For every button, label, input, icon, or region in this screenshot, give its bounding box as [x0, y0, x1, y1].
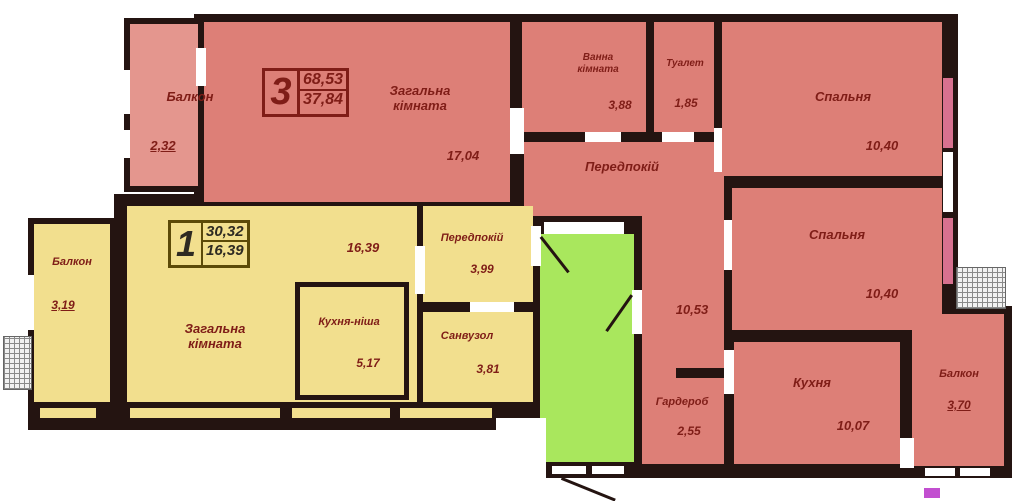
- label-living3: Загальна кімната: [368, 84, 472, 114]
- door-san1: [470, 302, 514, 312]
- area-bedroom1: 10,40: [852, 138, 912, 153]
- label-hallway3: Передпокій: [566, 160, 678, 175]
- label-bedroom2: Спальня: [782, 228, 892, 243]
- window-balcony-left: [28, 275, 34, 330]
- door-kitchen3-balcony: [900, 438, 914, 468]
- room-balcony-left: [34, 224, 110, 402]
- label-balcony-left: Балкон: [38, 256, 106, 269]
- apt3-number: 3: [265, 71, 299, 114]
- label-toilet: Туалет: [656, 58, 714, 70]
- door-bath: [585, 132, 621, 142]
- label-balcony-top: Балкон: [140, 90, 240, 105]
- apt3-stamp: 3 68,53 37,84: [262, 68, 349, 117]
- erased-corner: [496, 418, 546, 488]
- floor-plan: 3 68,53 37,84 1 30,32 16,39 Балкон 2,32 …: [0, 0, 1020, 501]
- label-living1: Загальна кімната: [163, 322, 267, 352]
- area-toilet: 1,85: [662, 96, 710, 110]
- door-toilet: [662, 132, 694, 142]
- apt1-number: 1: [171, 223, 203, 265]
- room-kitchen-niche: [295, 282, 409, 400]
- area-wardrobe: 2,55: [664, 424, 714, 438]
- apt1-stamp: 1 30,32 16,39: [168, 220, 250, 268]
- room-balcony-top: [130, 24, 198, 186]
- label-balcony-right: Балкон: [924, 368, 994, 381]
- window-balcony-right-2: [960, 468, 990, 476]
- label-hallway1: Передпокій: [426, 232, 518, 245]
- room-balcony-right: [912, 314, 1004, 466]
- apt3-area-living: 37,84: [300, 91, 346, 109]
- area-living1: 16,39: [328, 240, 398, 255]
- area-bath: 3,88: [596, 98, 644, 112]
- window-magenta: [924, 488, 940, 498]
- area-balcony-top: 2,32: [135, 138, 191, 153]
- door-bedroom2: [724, 220, 732, 270]
- window-balcony-top-1: [124, 70, 130, 114]
- door-kitchen3: [724, 350, 734, 394]
- area-bedroom2: 10,40: [852, 286, 912, 301]
- room-hallway3-top: [524, 142, 724, 216]
- area-living3: 17,04: [428, 148, 498, 163]
- window-apt1-bottom-1: [130, 408, 280, 418]
- apt1-area-living: 16,39: [203, 242, 247, 259]
- window-bedroom2-pink: [943, 218, 953, 284]
- window-apt1-bottom-3: [400, 408, 492, 418]
- room-kitchen3: [734, 342, 900, 464]
- door-bedroom1: [714, 128, 722, 172]
- room-stairwell: [540, 234, 634, 462]
- window-balcony-left-bottom: [40, 408, 96, 418]
- door-living3-hall: [510, 108, 524, 154]
- window-bedroom-gap: [943, 152, 953, 212]
- apt3-area-total: 68,53: [300, 71, 346, 91]
- hatch-left: [3, 336, 32, 390]
- area-kitchen3: 10,07: [818, 418, 888, 433]
- room-san1: [423, 312, 533, 402]
- window-balcony-top-2: [124, 130, 130, 158]
- area-hallway1: 3,99: [452, 262, 512, 276]
- label-bath: Ванна кімната: [562, 52, 634, 75]
- area-san1: 3,81: [458, 362, 518, 376]
- door-living1-hall1: [415, 246, 425, 294]
- door-living3-balcony: [196, 48, 206, 86]
- window-apt1-bottom-2: [292, 408, 390, 418]
- area-hallway3: 10,53: [662, 302, 722, 317]
- window-balcony-right-1: [925, 468, 955, 476]
- wall-wardrobe-partition: [676, 368, 724, 378]
- window-bedroom1-pink: [943, 78, 953, 148]
- door-stairwell-top: [544, 222, 624, 234]
- door-hall1-stairwell: [531, 226, 541, 266]
- area-kitchen-niche: 5,17: [338, 356, 398, 370]
- door-swing-building-entrance: [561, 477, 616, 501]
- room-toilet: [654, 22, 714, 132]
- room-hallway1: [423, 206, 533, 302]
- label-san1: Санвузол: [426, 330, 508, 343]
- label-wardrobe: Гардероб: [644, 396, 720, 409]
- area-balcony-right: 3,70: [934, 398, 984, 412]
- area-balcony-left: 3,19: [38, 298, 88, 312]
- label-bedroom1: Спальня: [788, 90, 898, 105]
- door-stairwell-right: [632, 290, 642, 334]
- label-kitchen3: Кухня: [772, 376, 852, 391]
- window-stairwell-2: [592, 466, 624, 474]
- window-stairwell-1: [552, 466, 586, 474]
- label-kitchen-niche: Кухня-ніша: [303, 316, 395, 329]
- room-bath: [522, 22, 646, 132]
- apt1-area-total: 30,32: [203, 223, 247, 242]
- room-bedroom2: [732, 188, 942, 330]
- hatch-right: [956, 267, 1006, 309]
